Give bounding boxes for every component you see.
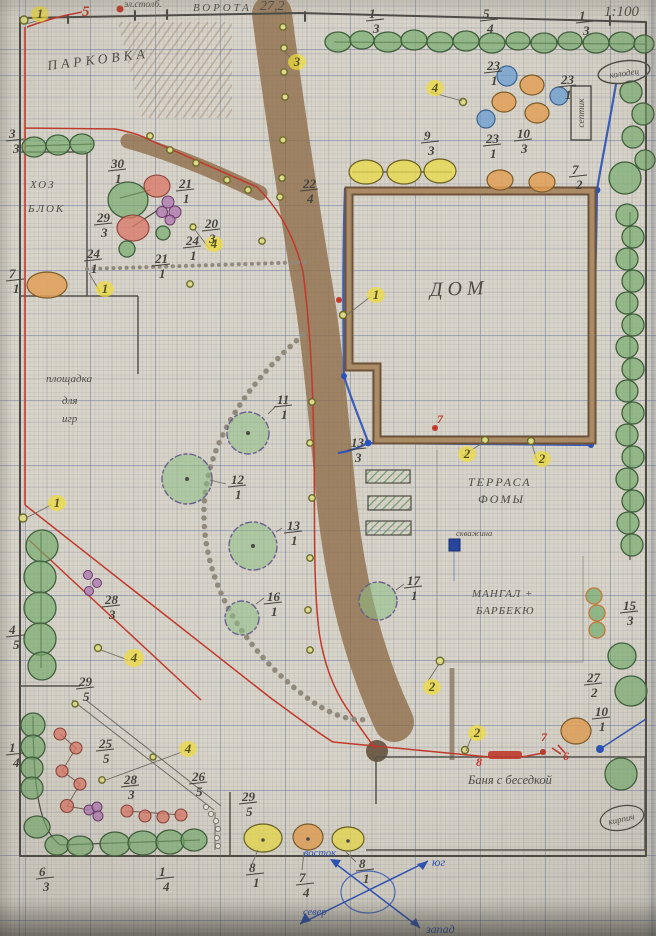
svg-text:4: 4	[130, 650, 138, 665]
svg-text:1: 1	[373, 287, 380, 302]
svg-text:1: 1	[235, 487, 242, 502]
red-8: 8	[476, 755, 482, 769]
path-end-blob	[366, 740, 388, 762]
svg-text:1: 1	[91, 261, 98, 276]
svg-text:5: 5	[196, 784, 203, 799]
svg-text:20: 20	[204, 216, 219, 231]
svg-text:2: 2	[590, 685, 598, 700]
svg-text:1: 1	[369, 6, 376, 21]
svg-text:1: 1	[13, 281, 20, 296]
svg-text:1: 1	[253, 875, 260, 890]
borehole-label: скважина	[456, 528, 492, 538]
svg-text:8: 8	[359, 856, 366, 871]
svg-text:3: 3	[354, 450, 362, 465]
svg-text:5: 5	[483, 6, 490, 21]
compass-north: север	[303, 907, 327, 918]
hedge-left-top	[22, 134, 94, 157]
svg-text:1: 1	[281, 407, 288, 422]
compass: восток юг север запад	[300, 848, 455, 936]
svg-text:28: 28	[104, 592, 119, 607]
svg-text:1: 1	[102, 281, 109, 296]
svg-text:2: 2	[473, 725, 481, 740]
svg-text:13: 13	[351, 435, 365, 450]
playground-label-2: для	[62, 395, 77, 407]
svg-text:1: 1	[490, 146, 497, 161]
svg-text:30: 30	[110, 156, 125, 171]
svg-text:1: 1	[271, 604, 278, 619]
compass-west: запад	[425, 922, 455, 936]
terrace-label-2: ФОМЫ	[478, 492, 525, 506]
svg-text:1: 1	[159, 266, 166, 281]
svg-text:2: 2	[538, 451, 546, 466]
svg-text:3: 3	[293, 54, 301, 69]
svg-text:4: 4	[302, 885, 310, 900]
svg-text:24: 24	[185, 233, 200, 248]
power-pole-label: эл.столб.	[124, 0, 161, 10]
red-7-house: 7	[437, 412, 444, 426]
svg-text:1: 1	[9, 740, 16, 755]
svg-text:3: 3	[8, 126, 16, 141]
svg-text:5: 5	[13, 637, 20, 652]
svg-text:4: 4	[306, 191, 314, 206]
brick-label: кирпич	[607, 811, 635, 826]
svg-text:21: 21	[178, 176, 192, 191]
gate-label: ВОРОТА	[193, 2, 252, 14]
svg-text:27: 27	[586, 670, 601, 685]
red-5: 5	[82, 4, 90, 20]
red-6: 6	[563, 749, 569, 763]
well-label: колодец	[609, 66, 640, 80]
bbq-label-1: МАНГАЛ +	[471, 588, 533, 600]
svg-text:29: 29	[96, 210, 111, 225]
svg-text:1: 1	[115, 171, 122, 186]
svg-text:4: 4	[431, 80, 439, 95]
svg-text:4: 4	[162, 879, 170, 894]
bath-label: Баня с беседкой	[467, 773, 553, 787]
utility-label-1: ХОЗ	[29, 179, 56, 191]
svg-text:3: 3	[108, 607, 116, 622]
svg-text:29: 29	[241, 789, 256, 804]
svg-text:13: 13	[287, 518, 301, 533]
red-bench-bar	[488, 751, 522, 759]
svg-text:8: 8	[249, 860, 256, 875]
scale-label: 1:100	[604, 4, 639, 20]
terrace-label-1: ТЕРРАСА	[468, 475, 532, 489]
borehole-point	[449, 539, 460, 551]
hedge-bottom-left	[21, 713, 207, 856]
svg-text:3: 3	[100, 225, 108, 240]
svg-text:3: 3	[582, 23, 590, 38]
svg-text:1: 1	[37, 6, 44, 21]
svg-text:1: 1	[491, 73, 498, 88]
utility-label-2: БЛОК	[27, 203, 65, 215]
well-bubble: колодец	[597, 57, 652, 86]
svg-text:3: 3	[626, 613, 634, 628]
svg-text:4: 4	[8, 622, 16, 637]
bbq-label-2: БАРБЕКЮ	[475, 605, 535, 617]
svg-text:28: 28	[123, 772, 138, 787]
septic-label: септик	[577, 98, 587, 128]
svg-text:7: 7	[9, 266, 16, 281]
svg-text:3: 3	[372, 21, 380, 36]
power-pole-dot	[117, 6, 124, 13]
svg-text:1: 1	[291, 533, 298, 548]
svg-text:24: 24	[86, 246, 101, 261]
svg-text:16: 16	[267, 589, 281, 604]
svg-text:10: 10	[595, 704, 609, 719]
width-label: 27,2	[260, 0, 285, 14]
svg-text:3: 3	[12, 141, 20, 156]
svg-text:5: 5	[103, 751, 110, 766]
svg-text:4: 4	[12, 755, 20, 770]
svg-text:4: 4	[184, 741, 192, 756]
svg-text:23: 23	[486, 58, 501, 73]
svg-text:1: 1	[159, 864, 166, 879]
compass-south: юг	[432, 855, 445, 869]
playground-label-3: игр	[62, 413, 78, 425]
svg-text:6: 6	[39, 864, 46, 879]
svg-text:11: 11	[277, 392, 289, 407]
garden-plan-drawing: колодец септик кирпич эл.столб. ВОРОТА 2…	[0, 0, 656, 936]
svg-text:29: 29	[78, 674, 93, 689]
svg-text:23: 23	[485, 131, 500, 146]
playground-label-1: площадка	[46, 373, 92, 385]
svg-text:5: 5	[246, 804, 253, 819]
svg-text:1: 1	[54, 495, 61, 510]
svg-text:15: 15	[623, 598, 637, 613]
hedge-left-mid	[24, 530, 58, 680]
svg-text:17: 17	[407, 573, 421, 588]
compass-east: восток	[304, 848, 336, 859]
svg-text:1: 1	[411, 588, 418, 603]
svg-text:3: 3	[127, 787, 135, 802]
svg-text:1: 1	[579, 8, 586, 23]
brick-bubble: кирпич	[598, 802, 646, 835]
svg-text:22: 22	[302, 176, 317, 191]
house-label: ДОМ	[427, 277, 489, 301]
svg-text:25: 25	[98, 736, 113, 751]
svg-text:2: 2	[575, 177, 583, 192]
svg-text:1: 1	[183, 191, 190, 206]
shrubs-bottom-row	[244, 824, 364, 870]
svg-text:5: 5	[83, 689, 90, 704]
svg-text:12: 12	[231, 472, 245, 487]
svg-text:3: 3	[42, 879, 50, 894]
red-7-bath: 7	[541, 730, 548, 744]
septic-box: септик	[571, 86, 591, 140]
flowerbed-cluster-utility	[108, 175, 181, 257]
house-outline	[349, 191, 592, 440]
shrub-orange-left	[27, 272, 67, 298]
svg-text:9: 9	[424, 128, 431, 143]
svg-text:23: 23	[560, 72, 575, 87]
svg-text:7: 7	[572, 162, 579, 177]
driveway-paths	[118, 14, 452, 762]
svg-text:3: 3	[520, 141, 528, 156]
svg-text:21: 21	[154, 251, 168, 266]
svg-text:2: 2	[428, 679, 436, 694]
garden-plan-scan: колодец септик кирпич эл.столб. ВОРОТА 2…	[0, 0, 656, 936]
svg-text:1: 1	[363, 871, 370, 886]
svg-text:26: 26	[191, 769, 206, 784]
garden-beds	[366, 470, 411, 535]
svg-text:2: 2	[463, 446, 471, 461]
svg-text:10: 10	[517, 126, 531, 141]
svg-text:1: 1	[190, 248, 197, 263]
svg-text:1: 1	[599, 719, 606, 734]
svg-text:4: 4	[486, 21, 494, 36]
svg-text:1: 1	[565, 87, 572, 102]
svg-text:7: 7	[299, 870, 306, 885]
svg-text:3: 3	[208, 231, 216, 246]
svg-text:3: 3	[427, 143, 435, 158]
